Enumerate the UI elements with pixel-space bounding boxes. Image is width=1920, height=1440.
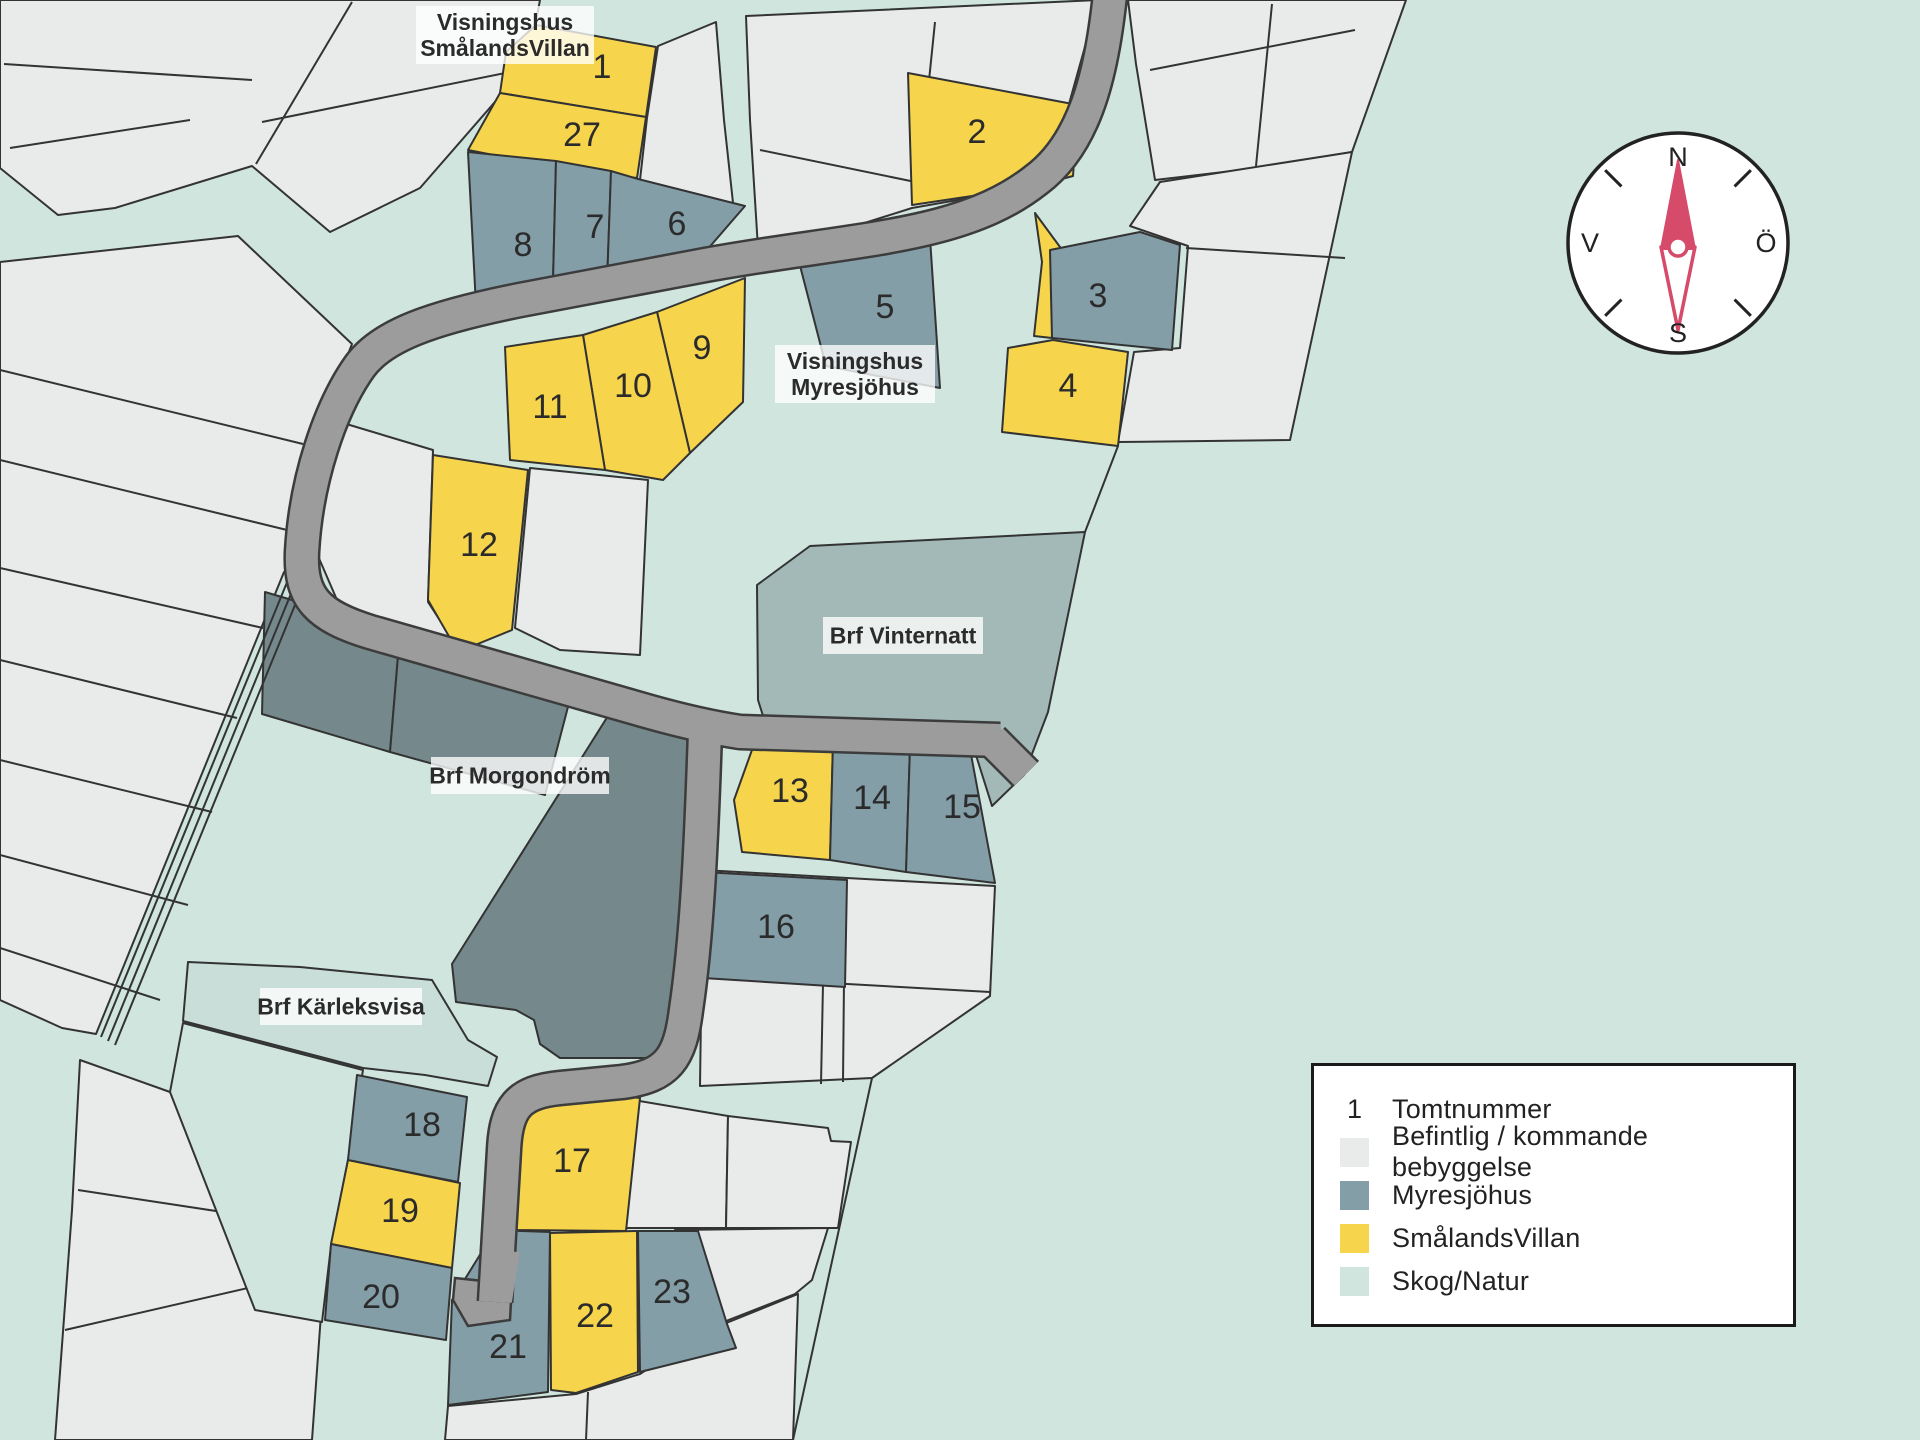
legend-item: Befintlig / kommande bebyggelse — [1340, 1131, 1793, 1174]
legend-swatch — [1340, 1181, 1369, 1210]
lot-number: 11 — [532, 388, 567, 426]
label-visningshus-smalandsvillan-line: Visningshus — [437, 9, 573, 35]
label-brf-vinternatt-line: Brf Vinternatt — [830, 623, 977, 649]
legend-swatch — [1340, 1267, 1369, 1296]
legend-swatch — [1340, 1224, 1369, 1253]
lot-number: 21 — [489, 1328, 527, 1366]
lot-number: 6 — [668, 205, 687, 243]
lot-number: 16 — [757, 908, 795, 946]
lot-number: 17 — [553, 1142, 591, 1180]
lot-number: 10 — [614, 367, 652, 405]
legend-number-symbol: 1 — [1340, 1094, 1369, 1125]
cluster-mid-east — [515, 468, 648, 655]
compass-hub — [1669, 238, 1687, 256]
label-visningshus-smalandsvillan-line: SmålandsVillan — [420, 35, 590, 61]
legend-swatch — [1340, 1138, 1369, 1167]
lot-number: 18 — [403, 1106, 441, 1144]
compass-letter-w: V — [1581, 228, 1599, 258]
lot-number: 20 — [362, 1278, 400, 1316]
lot-number: 22 — [576, 1297, 614, 1335]
label-brf-vinternatt: Brf Vinternatt — [830, 623, 977, 649]
lot-number: 13 — [771, 772, 809, 810]
lot-number: 19 — [381, 1192, 419, 1230]
legend-label: Myresjöhus — [1392, 1180, 1532, 1211]
label-visningshus-myresjohus: VisningshusMyresjöhus — [787, 348, 923, 400]
legend-label: SmålandsVillan — [1392, 1223, 1580, 1254]
lot-3-polygon[interactable] — [1050, 232, 1180, 350]
label-visningshus-myresjohus-line: Myresjöhus — [791, 374, 919, 400]
lot-number: 14 — [853, 779, 891, 817]
legend-box: 1TomtnummerBefintlig / kommande bebyggel… — [1311, 1063, 1796, 1327]
compass-letter-s: S — [1669, 318, 1687, 348]
lot-number: 27 — [563, 116, 601, 154]
road-patch — [496, 1250, 504, 1300]
label-visningshus-myresjohus-line: Visningshus — [787, 348, 923, 374]
legend-item: SmålandsVillan — [1340, 1217, 1793, 1260]
lot-number: 8 — [514, 226, 533, 264]
lot-number: 23 — [653, 1273, 691, 1311]
lot-number: 9 — [693, 329, 712, 367]
legend-label: Skog/Natur — [1392, 1266, 1529, 1297]
label-brf-morgondrom-line: Brf Morgondröm — [429, 763, 610, 789]
lot-number: 7 — [586, 208, 605, 246]
lot-number: 4 — [1059, 367, 1078, 405]
lot-number: 12 — [460, 526, 498, 564]
label-brf-morgondrom: Brf Morgondröm — [429, 763, 610, 789]
label-visningshus-smalandsvillan: VisningshusSmålandsVillan — [420, 9, 590, 61]
label-brf-karleksvisa-line: Brf Kärleksvisa — [257, 994, 425, 1020]
compass-letter-e: Ö — [1755, 228, 1776, 258]
lot-number: 2 — [968, 113, 987, 151]
legend-item: Skog/Natur — [1340, 1260, 1793, 1303]
lot-number: 3 — [1089, 277, 1108, 315]
lot-number: 5 — [876, 288, 895, 326]
label-brf-karleksvisa: Brf Kärleksvisa — [257, 994, 425, 1020]
compass-letter-n: N — [1668, 142, 1688, 172]
lot-number: 1 — [593, 48, 612, 86]
site-plan-page: 127249101112131719228765314151618202123V… — [0, 0, 1920, 1440]
legend-label: Tomtnummer — [1392, 1094, 1552, 1125]
legend-item: Myresjöhus — [1340, 1174, 1793, 1217]
lot-number: 15 — [943, 788, 981, 826]
